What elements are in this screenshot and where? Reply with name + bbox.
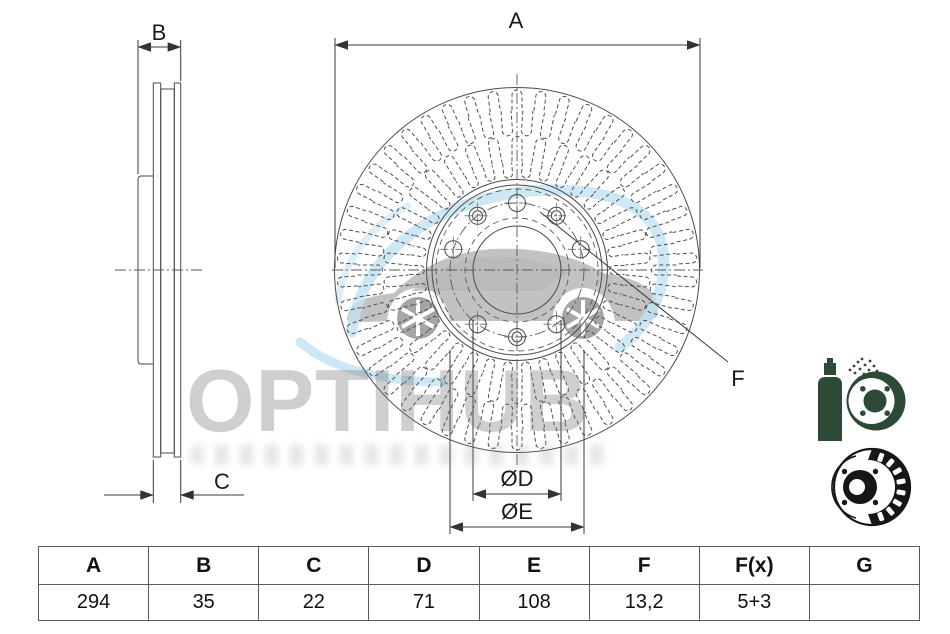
vent-slot: [464, 423, 479, 445]
vent-slot: [483, 358, 496, 375]
vent-slot: [593, 210, 610, 226]
vent-slot: [657, 183, 679, 201]
value-e: 108: [479, 585, 589, 621]
spray-dot: [868, 369, 871, 372]
vent-slot: [503, 362, 513, 378]
side-view: [104, 40, 244, 503]
col-header-a: A: [39, 547, 149, 585]
vent-slot: [355, 183, 377, 201]
vent-slot: [557, 395, 575, 422]
vent-slot: [521, 163, 531, 179]
vent-slot: [459, 395, 477, 422]
vent-slot: [570, 154, 592, 181]
spray-dot: [869, 360, 872, 363]
vent-slot: [574, 126, 594, 153]
col-header-c: C: [259, 547, 369, 585]
vent-slot: [614, 391, 634, 413]
value-f: 13,2: [589, 585, 699, 621]
vent-slot: [400, 391, 420, 413]
vent-slot: [390, 351, 416, 375]
value-c: 22: [259, 585, 369, 621]
value-g: [809, 585, 919, 621]
vent-slot: [346, 205, 368, 221]
vent-slot: [480, 401, 495, 428]
vent-slot: [555, 95, 570, 117]
spray-dot: [854, 372, 857, 375]
vent-slot: [382, 143, 403, 164]
vent-slot: [607, 246, 623, 258]
vent-slot: [488, 428, 501, 449]
col-header-g: G: [809, 547, 919, 585]
dim-label-a: A: [509, 8, 524, 33]
vent-slot: [666, 205, 688, 221]
table-header-row: A B C D E F F(x) G: [39, 547, 920, 585]
vent-slot: [465, 172, 480, 189]
value-d: 71: [369, 585, 479, 621]
vent-slot: [539, 401, 554, 428]
vent-slot: [645, 358, 667, 378]
vent-slot: [411, 246, 427, 258]
vent-slot: [618, 165, 644, 189]
spray-dot: [853, 365, 856, 368]
vent-slot: [483, 165, 496, 182]
vent-slot: [673, 298, 695, 312]
dim-label-f: F: [731, 366, 744, 391]
technical-drawing-page: A B C ØD ØE F: [0, 0, 950, 634]
dim-label-d: ØD: [501, 466, 534, 491]
vent-slot: [400, 127, 420, 149]
value-a: 294: [39, 585, 149, 621]
vent-slot: [631, 143, 652, 164]
spray-dot: [857, 361, 860, 364]
vent-slot: [439, 126, 459, 153]
vent-slot: [576, 103, 593, 125]
dim-label-c: C: [214, 469, 230, 494]
vent-slot: [464, 144, 482, 171]
col-header-b: B: [149, 547, 259, 585]
vent-slot: [539, 113, 554, 140]
col-header-d: D: [369, 547, 479, 585]
table-value-row: 294 35 22 71 108 13,2 5+3: [39, 585, 920, 621]
vent-slot: [488, 91, 501, 112]
vent-slot: [419, 404, 438, 426]
vent-slot: [465, 351, 480, 368]
vent-slot: [419, 114, 438, 136]
vent-slot: [367, 162, 389, 182]
vent-slot: [503, 163, 513, 179]
vent-slot: [340, 228, 362, 242]
vent-slot: [378, 336, 405, 358]
vent-slot: [421, 137, 444, 163]
dimensions-table: A B C D E F F(x) G 294 35 22 71 108 13,2…: [38, 546, 920, 621]
vent-slot: [501, 111, 513, 137]
vent-slot: [570, 360, 592, 387]
vent-slot: [657, 339, 679, 357]
vent-slot: [538, 165, 551, 182]
vent-slot: [591, 377, 614, 403]
vent-slot: [390, 165, 416, 189]
vent-slot: [534, 428, 547, 449]
vent-slot: [355, 339, 377, 357]
vent-slot: [480, 113, 495, 140]
vent-slot: [673, 228, 695, 242]
vent-slot: [590, 137, 613, 163]
vent-slot: [384, 275, 410, 287]
vent-slot: [645, 162, 667, 182]
vent-slot: [441, 415, 458, 437]
vent-slot: [423, 347, 447, 372]
vent-slot: [620, 229, 647, 245]
vent-slot: [449, 341, 465, 358]
dim-label-e: ØE: [501, 499, 533, 524]
vent-slot: [555, 423, 570, 445]
col-header-f: F: [589, 547, 699, 585]
vent-slot: [554, 351, 569, 368]
vent-slot: [557, 118, 575, 145]
col-header-e: E: [479, 547, 589, 585]
vent-slot: [439, 387, 459, 414]
vent-slot: [532, 138, 546, 164]
spray-dot: [859, 368, 862, 371]
dim-label-b: B: [152, 20, 167, 45]
vent-slot: [521, 111, 533, 137]
vent-slot: [369, 319, 396, 338]
vent-slot: [596, 114, 615, 136]
value-b: 35: [149, 585, 259, 621]
vent-slot: [521, 404, 533, 430]
vent-slot: [442, 360, 464, 387]
vent-slot: [676, 276, 697, 287]
col-header-fx: F(x): [699, 547, 809, 585]
spray-coated-disc-icon: [818, 358, 906, 441]
vent-slot: [488, 376, 502, 402]
vent-slot: [441, 103, 458, 125]
vent-slot: [488, 138, 502, 164]
vent-slot: [378, 183, 405, 205]
vent-slot: [586, 347, 610, 372]
vent-slot: [435, 329, 452, 346]
spray-dot: [849, 369, 852, 372]
vent-slot: [532, 376, 546, 402]
value-fx: 5+3: [699, 585, 809, 621]
vent-slot: [596, 404, 615, 426]
spray-dot: [864, 364, 867, 367]
vent-slot: [501, 404, 513, 430]
vent-slot: [631, 376, 652, 397]
vent-slot: [576, 415, 593, 437]
vent-slot: [625, 253, 651, 265]
vent-slot: [521, 362, 531, 378]
spray-dot: [861, 358, 864, 361]
vent-slot: [464, 95, 479, 117]
vent-slot: [538, 358, 551, 375]
vent-slot: [602, 227, 619, 241]
vent-slot: [552, 144, 570, 171]
vent-slot: [534, 91, 547, 112]
vent-slot: [442, 154, 464, 181]
car-silhouette-watermark: [347, 249, 658, 339]
vent-slot: [629, 183, 656, 205]
vent-slot: [605, 150, 629, 175]
vent-slot: [423, 168, 447, 193]
brake-disc-drawing: A B C ØD ØE F: [0, 0, 950, 545]
vent-slot: [459, 118, 477, 145]
vented-disc-icon: [832, 449, 910, 525]
vent-slot: [404, 150, 428, 175]
vent-slot: [618, 351, 644, 375]
vent-slot: [676, 253, 697, 264]
vent-slot: [574, 387, 594, 414]
vent-slot: [449, 181, 465, 198]
vent-slot: [605, 365, 629, 390]
spray-dot: [873, 365, 876, 368]
vent-slot: [569, 341, 585, 358]
vent-slot: [614, 127, 634, 149]
